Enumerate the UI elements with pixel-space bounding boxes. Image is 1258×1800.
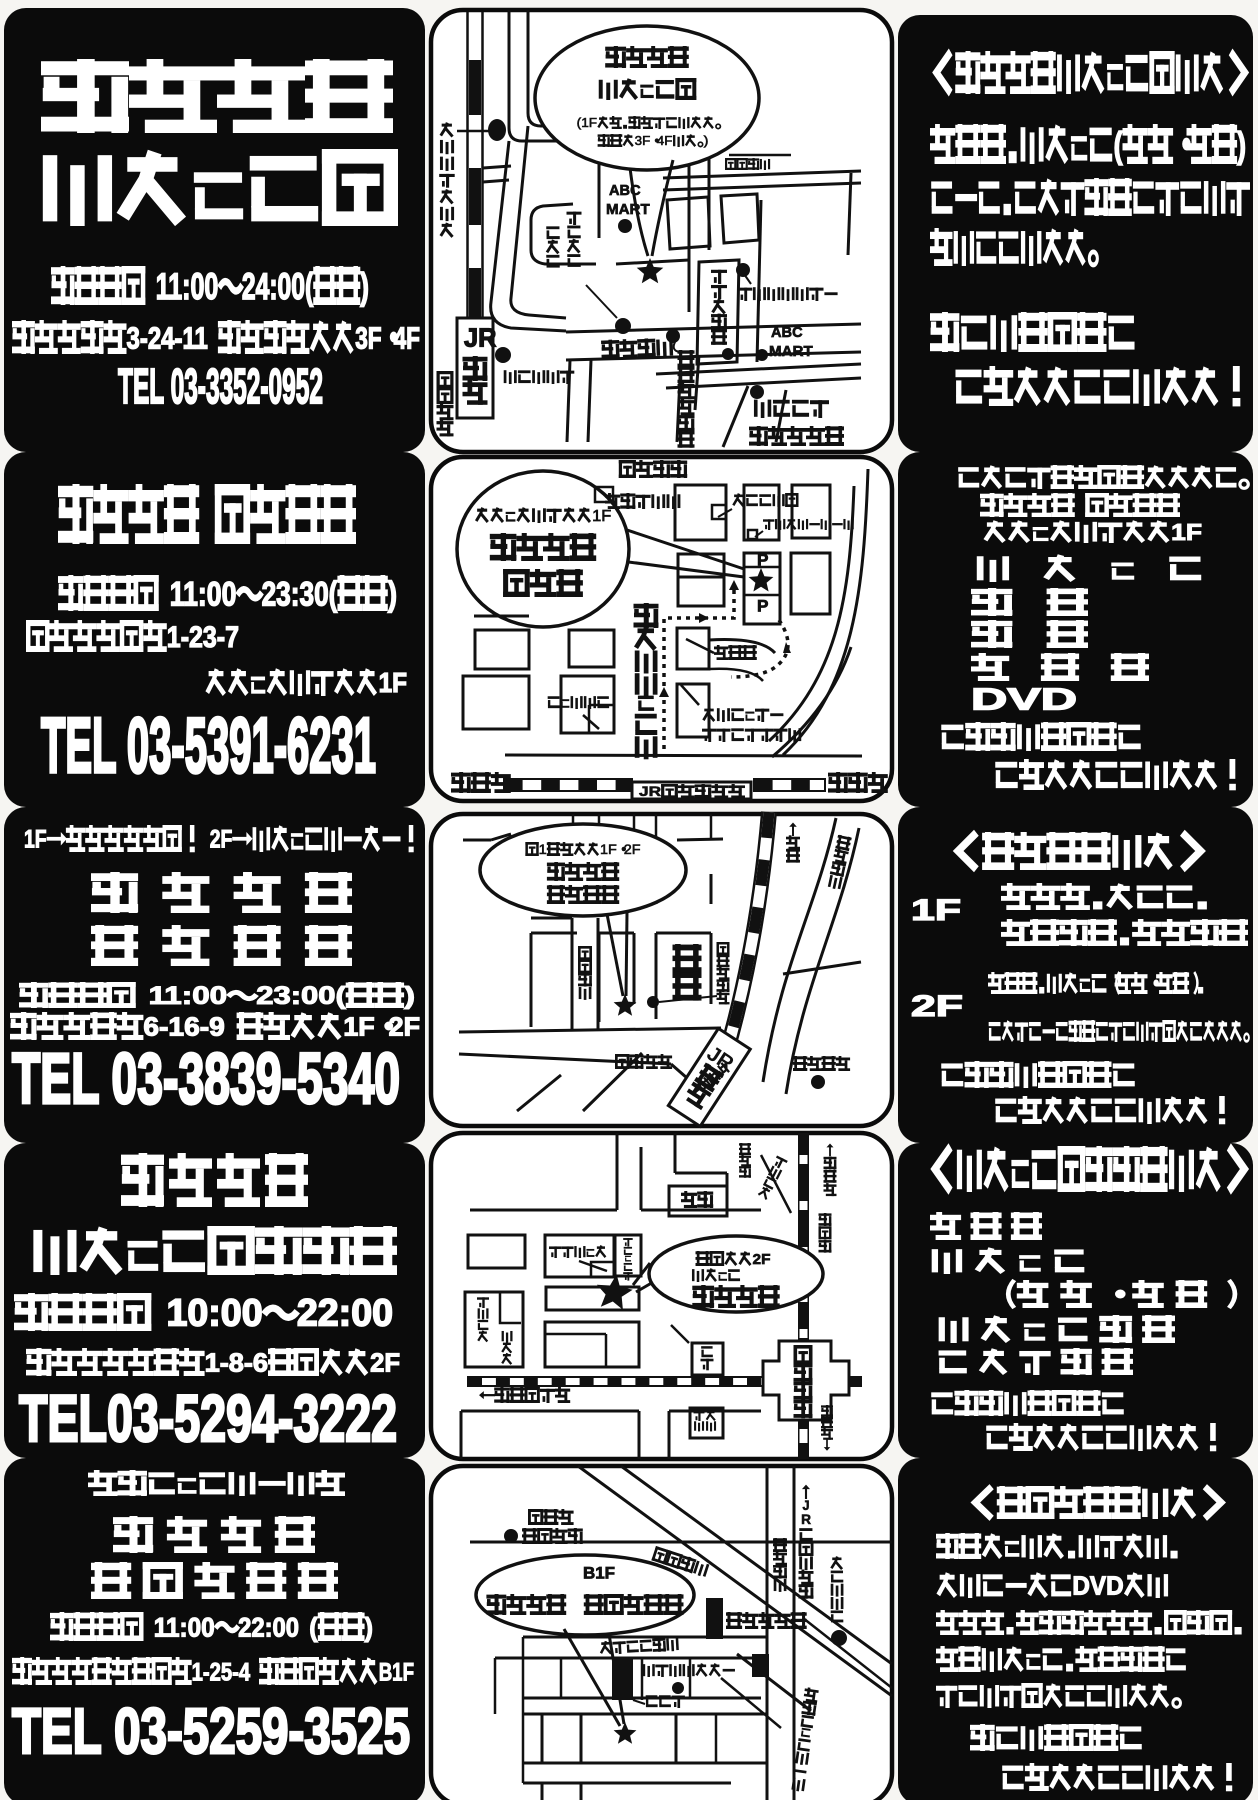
svg-text:2F: 2F xyxy=(753,1251,771,1268)
svg-text:1F: 1F xyxy=(24,826,47,854)
svg-text:22:00: 22:00 xyxy=(297,1293,393,1335)
svg-text:2F: 2F xyxy=(210,826,233,854)
svg-text:6-16-9: 6-16-9 xyxy=(143,1012,224,1042)
svg-text:2F: 2F xyxy=(911,990,963,1023)
svg-text:JR: JR xyxy=(639,783,661,799)
svg-text:P: P xyxy=(757,597,768,616)
svg-text:ABC: ABC xyxy=(771,324,803,341)
svg-text:24:00(: 24:00( xyxy=(242,266,314,307)
svg-text:(1F: (1F xyxy=(577,115,597,130)
svg-text:JR: JR xyxy=(464,322,497,352)
svg-text:ABC: ABC xyxy=(609,182,641,199)
svg-text:): ) xyxy=(365,1612,374,1642)
svg-text:23:30(: 23:30( xyxy=(262,575,338,613)
svg-text:(: ( xyxy=(309,1612,318,1642)
svg-text:J: J xyxy=(803,1498,810,1513)
svg-text:11:00: 11:00 xyxy=(154,1612,215,1642)
svg-text:B1F: B1F xyxy=(379,1658,414,1686)
svg-text:TEL 03-3352-0952: TEL 03-3352-0952 xyxy=(118,360,323,414)
svg-text:3F: 3F xyxy=(635,133,651,148)
svg-text:2F: 2F xyxy=(624,841,641,857)
svg-text:): ) xyxy=(704,133,709,148)
svg-text:): ) xyxy=(1237,124,1246,165)
svg-text:): ) xyxy=(388,575,397,613)
svg-text:11:00: 11:00 xyxy=(170,575,237,613)
svg-text:P: P xyxy=(757,551,768,570)
svg-text:1F: 1F xyxy=(592,508,611,525)
svg-text:1-8-6: 1-8-6 xyxy=(205,1348,268,1378)
svg-text:2F: 2F xyxy=(389,1012,420,1042)
svg-text:TEL 03-5259-3525: TEL 03-5259-3525 xyxy=(12,1695,410,1767)
svg-text:22:00: 22:00 xyxy=(238,1612,299,1642)
svg-text:4F: 4F xyxy=(394,321,420,356)
svg-text:DVD: DVD xyxy=(971,682,1077,717)
svg-text:10:00: 10:00 xyxy=(167,1293,263,1335)
svg-text:MART: MART xyxy=(769,343,813,360)
svg-text:3-24-11: 3-24-11 xyxy=(127,321,208,356)
svg-text:1F: 1F xyxy=(911,894,961,927)
svg-text:4F: 4F xyxy=(657,133,673,148)
svg-text:): ) xyxy=(360,266,369,307)
svg-text:TEL 03-5391-6231: TEL 03-5391-6231 xyxy=(41,701,376,789)
svg-text:1-25-4: 1-25-4 xyxy=(192,1658,251,1686)
svg-text:23:00(: 23:00( xyxy=(256,982,346,1010)
svg-text:(: ( xyxy=(1114,124,1123,165)
svg-text:1-23-7: 1-23-7 xyxy=(167,621,239,654)
svg-text:B1F: B1F xyxy=(583,1564,615,1583)
svg-text:): ) xyxy=(404,982,415,1010)
svg-text:1F: 1F xyxy=(379,667,407,698)
svg-text:1F: 1F xyxy=(600,841,617,857)
svg-text:3F: 3F xyxy=(355,321,381,356)
svg-text:1: 1 xyxy=(539,841,547,857)
svg-text:TEL03-5294-3222: TEL03-5294-3222 xyxy=(19,1381,397,1455)
svg-text:1F: 1F xyxy=(343,1012,374,1042)
svg-text:R: R xyxy=(801,1512,811,1527)
svg-text:2F: 2F xyxy=(370,1348,400,1378)
svg-text:DVD: DVD xyxy=(1072,1570,1123,1600)
svg-text:TEL 03-3839-5340: TEL 03-3839-5340 xyxy=(12,1040,400,1119)
svg-text:11:00: 11:00 xyxy=(156,266,219,307)
svg-text:1F: 1F xyxy=(1171,519,1202,545)
svg-text:MART: MART xyxy=(606,201,650,218)
svg-text:11:00: 11:00 xyxy=(149,982,228,1010)
